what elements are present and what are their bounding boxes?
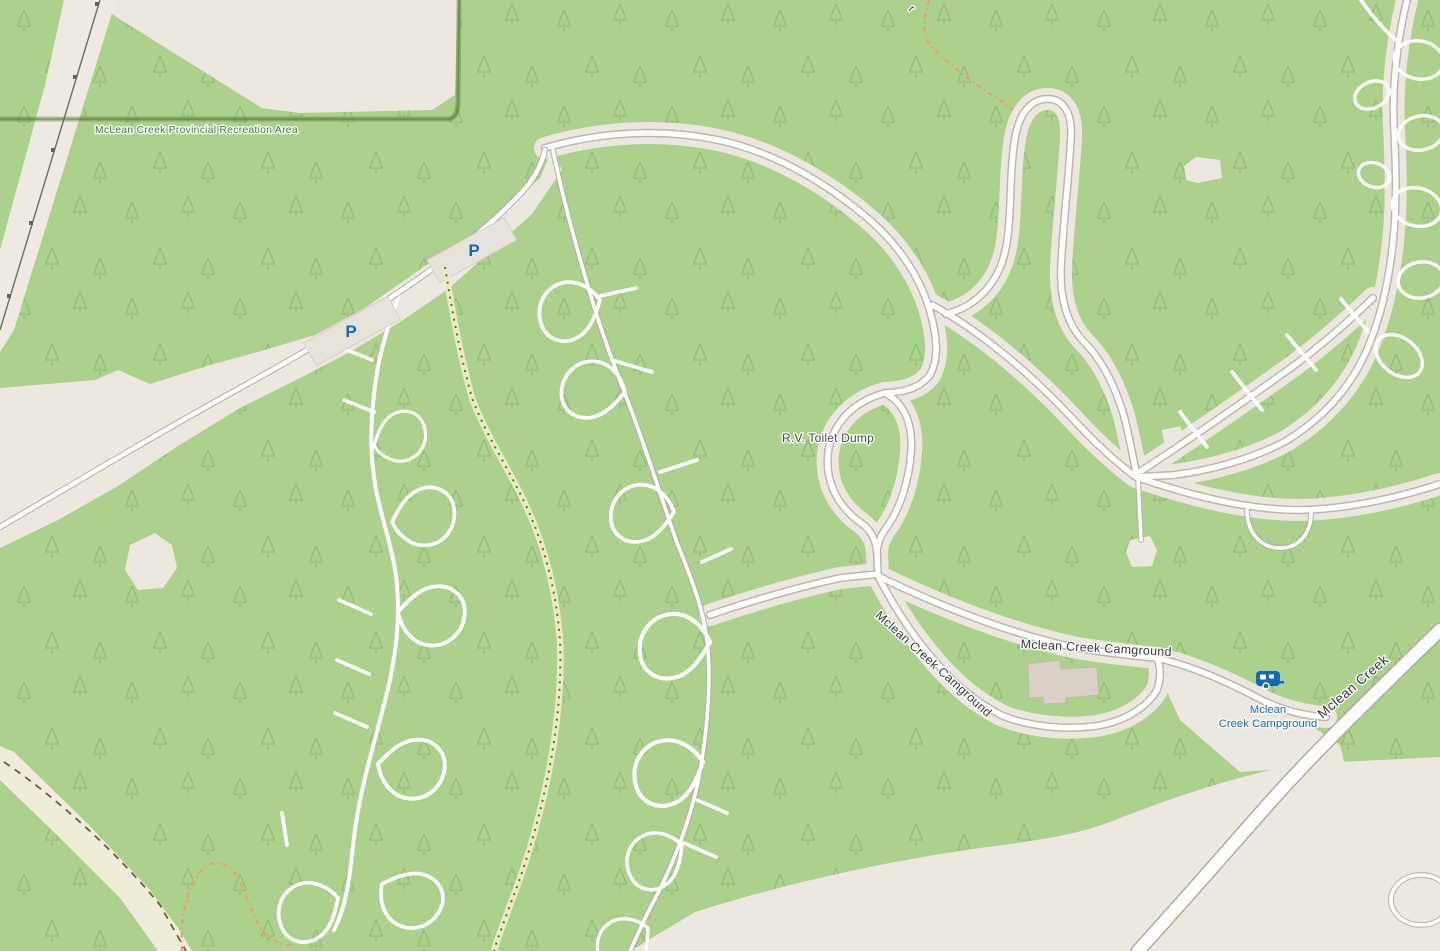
parking-icon[interactable]: P	[468, 241, 479, 260]
campground-poi-label-line2[interactable]: Creek Campground	[1219, 718, 1318, 730]
rv-toilet-dump-label: R.V. Toilet Dump	[782, 431, 874, 445]
protected-area-label: McLean Creek Provincial Recreation Area	[95, 125, 298, 136]
parking-icon[interactable]: P	[345, 322, 356, 341]
campground-poi-label-line1[interactable]: Mclean	[1250, 704, 1286, 716]
map-canvas[interactable]: McLean Creek Provincial Recreation Area …	[0, 0, 1440, 951]
map-svg: McLean Creek Provincial Recreation Area …	[0, 0, 1440, 951]
